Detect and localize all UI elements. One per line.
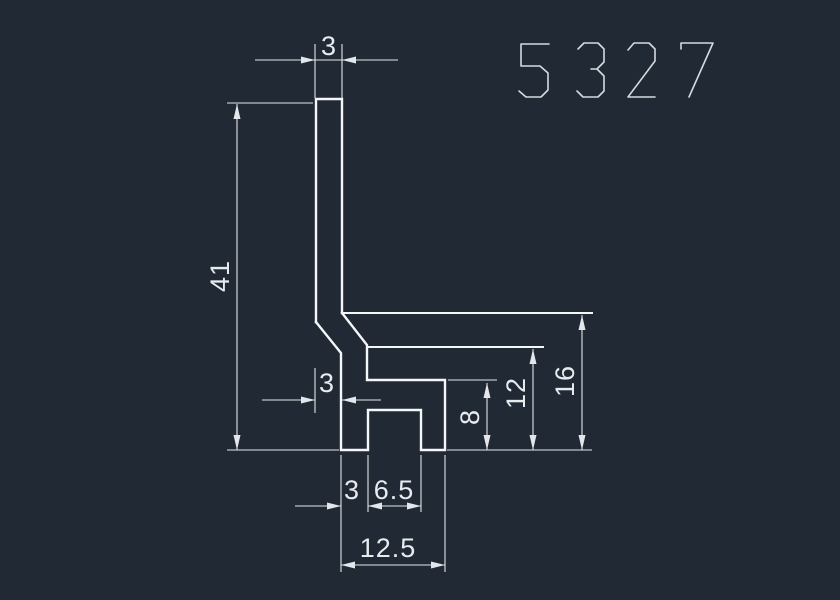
dim-text-step-height: 12 [501, 377, 531, 409]
arrowhead [234, 435, 241, 450]
dimension-top-width: 3 [255, 31, 398, 98]
dimension-foot-width: 12.5 [341, 533, 445, 569]
drawing-svg: 3 41 3 8 [0, 0, 840, 600]
arrowhead [431, 562, 445, 569]
arrowhead [530, 435, 537, 450]
dimension-jog-offset: 3 [262, 368, 381, 413]
dim-text-foot-width: 12.5 [360, 533, 417, 563]
dim-text-jog-offset: 3 [319, 368, 335, 398]
arrowhead [579, 435, 586, 450]
digit-2 [628, 43, 655, 97]
arrowhead [341, 562, 355, 569]
dim-text-arm-height: 16 [550, 365, 580, 397]
arrowhead [342, 397, 356, 404]
dim-text-notch-depth: 8 [455, 409, 485, 425]
arrowhead [234, 104, 241, 119]
digit-3 [577, 43, 604, 97]
digit-7 [681, 43, 713, 97]
dim-text-foot-left: 3 [344, 475, 360, 505]
dim-text-overall-height: 41 [205, 260, 235, 292]
dim-text-top-width: 3 [321, 31, 337, 61]
arrowhead [484, 435, 491, 450]
profile-lower-body [316, 313, 445, 450]
arrowhead [484, 383, 491, 398]
part-number [519, 43, 713, 97]
cad-drawing-canvas[interactable]: 3 41 3 8 [0, 0, 840, 600]
arrowhead [530, 349, 537, 364]
arrowhead [327, 503, 341, 510]
dimension-step-height: 12 [501, 349, 537, 450]
arrowhead [301, 397, 315, 404]
arrowhead [342, 57, 356, 64]
dimension-notch-depth: 8 [448, 380, 497, 450]
digit-5 [519, 44, 549, 97]
arrowhead [579, 315, 586, 330]
profile-bar [316, 99, 342, 322]
arrowhead [301, 57, 315, 64]
dim-text-notch-width: 6.5 [374, 475, 415, 505]
